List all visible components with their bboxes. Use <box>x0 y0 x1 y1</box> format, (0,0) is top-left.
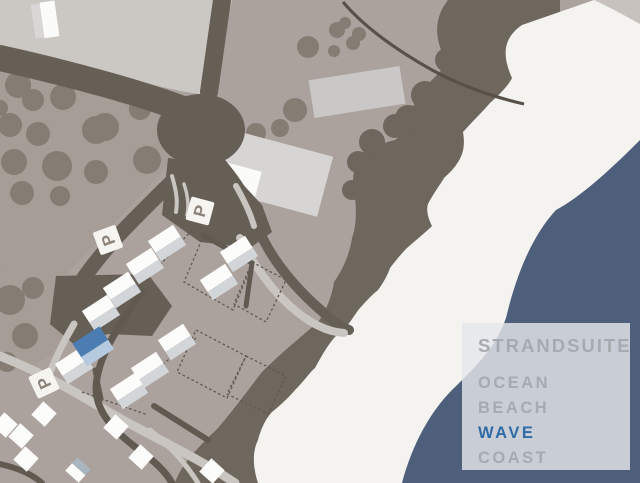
legend-item-wave[interactable]: WAVE <box>478 424 535 442</box>
small-building <box>31 1 60 40</box>
legend-title: STRANDSUITE <box>478 335 632 356</box>
map-screenshot: P P P STRANDSUITE OCEAN BEACH WAVE COAST <box>0 0 640 483</box>
junction-tree-canopy <box>157 94 245 166</box>
site-map: P P P STRANDSUITE OCEAN BEACH WAVE COAST <box>0 0 640 483</box>
legend-item-beach[interactable]: BEACH <box>478 399 549 417</box>
legend-panel: STRANDSUITE OCEAN BEACH WAVE COAST <box>462 323 632 470</box>
legend-item-coast[interactable]: COAST <box>478 449 548 467</box>
legend-item-ocean[interactable]: OCEAN <box>478 374 550 392</box>
